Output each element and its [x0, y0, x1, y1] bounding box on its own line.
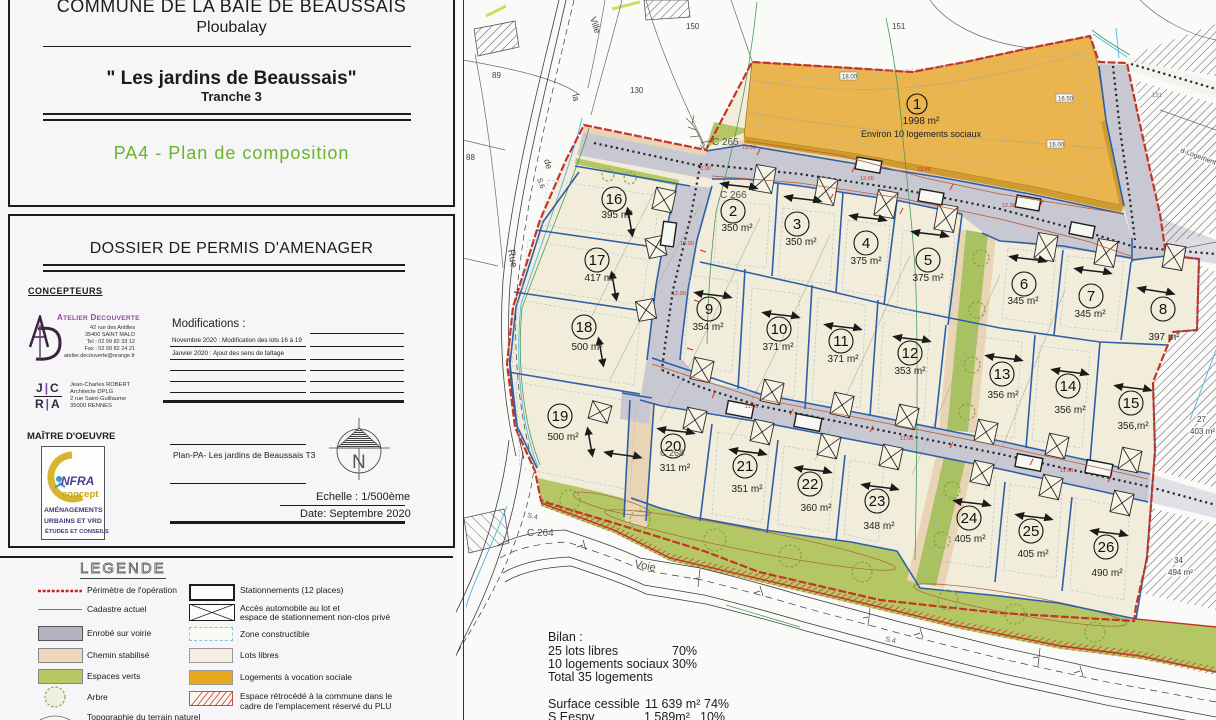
svg-text:1998 m²: 1998 m² — [903, 116, 940, 127]
svg-text:17: 17 — [589, 252, 606, 269]
svg-text:371 m²: 371 m² — [827, 354, 859, 365]
svg-text:311 m²: 311 m² — [660, 463, 691, 474]
svg-text:C 264: C 264 — [527, 528, 554, 539]
svg-text:11: 11 — [833, 333, 849, 350]
svg-text:12.38: 12.38 — [1002, 203, 1016, 209]
svg-text:88: 88 — [466, 153, 475, 162]
svg-text:N: N — [352, 452, 366, 473]
svg-text:30%: 30% — [672, 657, 697, 671]
svg-text:18.00: 18.00 — [842, 75, 858, 81]
svg-text:C 265: C 265 — [712, 137, 739, 148]
svg-text:395 m²: 395 m² — [601, 210, 633, 221]
svg-text:16.00: 16.00 — [1049, 143, 1065, 149]
svg-text:345 m²: 345 m² — [1074, 309, 1106, 320]
svg-text:concept: concept — [62, 489, 99, 500]
svg-text:Total 35 logements: Total 35 logements — [548, 670, 653, 684]
svg-text:360 m²: 360 m² — [800, 503, 832, 514]
svg-text:351 m²: 351 m² — [731, 484, 763, 495]
svg-text:25: 25 — [1023, 523, 1040, 540]
svg-text:371 m²: 371 m² — [762, 342, 794, 353]
svg-text:13.46: 13.46 — [917, 167, 931, 173]
svg-text:354 m²: 354 m² — [692, 322, 724, 333]
svg-text:500 m²: 500 m² — [547, 432, 579, 443]
svg-text:12.00: 12.00 — [680, 241, 694, 247]
svg-text:1 589m²: 1 589m² — [644, 710, 690, 720]
svg-text:5: 5 — [924, 252, 932, 269]
svg-text:490 m²: 490 m² — [1091, 568, 1123, 579]
svg-text:11 639 m²: 11 639 m² — [645, 697, 700, 711]
svg-text:10: 10 — [771, 321, 788, 338]
svg-text:500 m²: 500 m² — [571, 342, 603, 353]
svg-text:21: 21 — [737, 458, 754, 475]
svg-text:89: 89 — [492, 71, 501, 80]
svg-text:494 m²: 494 m² — [1168, 568, 1193, 577]
svg-text:11.00: 11.00 — [900, 436, 913, 442]
svg-text:16: 16 — [606, 191, 623, 208]
svg-text:375 m²: 375 m² — [850, 256, 882, 267]
svg-text:6: 6 — [1020, 276, 1028, 293]
svg-text:NFRA: NFRA — [61, 474, 94, 488]
svg-text:130: 130 — [630, 86, 644, 95]
svg-text:405 m²: 405 m² — [954, 534, 986, 545]
svg-text:350 m²: 350 m² — [785, 237, 817, 248]
svg-text:356 m²: 356 m² — [1054, 405, 1086, 416]
svg-text:356,m²: 356,m² — [1117, 421, 1149, 432]
svg-text:417 m²: 417 m² — [584, 273, 616, 284]
svg-text:4: 4 — [862, 235, 870, 252]
svg-text:19: 19 — [552, 408, 569, 425]
svg-text:12.00: 12.00 — [860, 176, 874, 182]
svg-text:2: 2 — [729, 203, 737, 220]
svg-text:356 m²: 356 m² — [987, 390, 1019, 401]
svg-text:350 m²: 350 m² — [721, 223, 753, 234]
svg-text:10 logements sociaux: 10 logements sociaux — [548, 657, 670, 671]
svg-text:34: 34 — [1174, 556, 1183, 565]
svg-text:11.00: 11.00 — [745, 404, 758, 410]
svg-text:348 m²: 348 m² — [863, 521, 895, 532]
svg-text:403 m²: 403 m² — [1190, 427, 1215, 436]
svg-text:74%: 74% — [704, 697, 729, 711]
svg-text:375 m²: 375 m² — [912, 273, 944, 284]
svg-text:1: 1 — [913, 96, 921, 113]
svg-text:151: 151 — [892, 22, 906, 31]
svg-text:2.00: 2.00 — [700, 166, 711, 172]
svg-text:Environ 10 logements sociaux: Environ 10 logements sociaux — [861, 129, 982, 139]
svg-text:10%: 10% — [700, 710, 725, 720]
svg-text:18: 18 — [576, 319, 593, 336]
svg-text:3: 3 — [793, 216, 801, 233]
svg-text:12: 12 — [902, 345, 919, 362]
svg-text:7: 7 — [1087, 288, 1095, 305]
svg-text:397 m²: 397 m² — [1148, 332, 1180, 343]
svg-text:23: 23 — [869, 493, 886, 510]
svg-text:14: 14 — [1060, 378, 1077, 395]
svg-text:16.50: 16.50 — [1058, 97, 1074, 103]
svg-text:353 m²: 353 m² — [894, 366, 926, 377]
svg-text:15: 15 — [1123, 395, 1140, 412]
svg-text:150: 150 — [686, 22, 700, 31]
svg-text:27: 27 — [1197, 415, 1206, 424]
svg-text:Surface cessible: Surface cessible — [548, 697, 640, 711]
svg-text:24: 24 — [961, 510, 978, 527]
svg-text:22: 22 — [802, 476, 819, 493]
svg-text:15.00: 15.00 — [742, 145, 756, 151]
svg-text:C 266: C 266 — [720, 190, 747, 201]
svg-text:151: 151 — [1152, 93, 1163, 99]
svg-text:Bilan :: Bilan : — [548, 630, 583, 644]
svg-text:26: 26 — [1098, 539, 1115, 556]
svg-text:13: 13 — [994, 366, 1011, 383]
svg-text:8: 8 — [1159, 301, 1167, 318]
svg-text:S Eespv: S Eespv — [548, 710, 595, 720]
svg-text:345 m²: 345 m² — [1007, 296, 1039, 307]
svg-text:25 lots libres: 25 lots libres — [548, 644, 618, 658]
svg-text:70%: 70% — [672, 644, 697, 658]
svg-text:C 268: C 268 — [660, 448, 684, 458]
svg-text:11.00: 11.00 — [1060, 468, 1073, 474]
svg-text:12.00: 12.00 — [672, 291, 686, 297]
svg-text:405 m²: 405 m² — [1017, 549, 1049, 560]
svg-text:9: 9 — [705, 301, 713, 318]
